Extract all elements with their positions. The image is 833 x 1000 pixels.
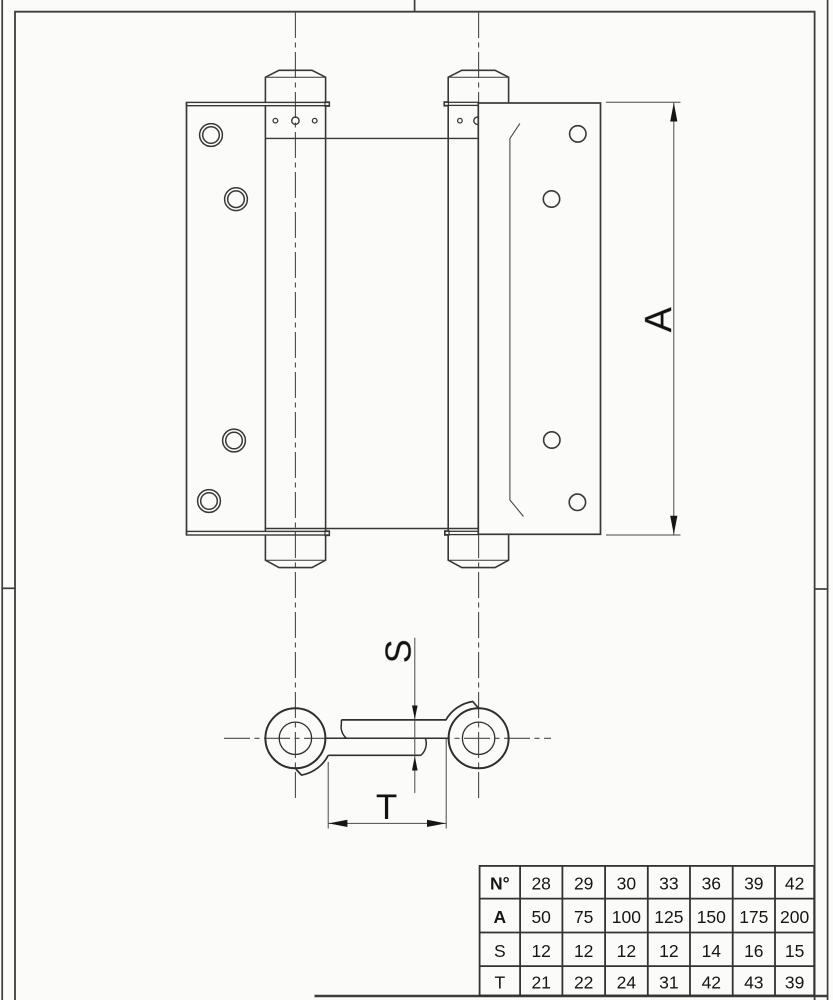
svg-text:150: 150	[697, 907, 726, 927]
svg-text:33: 33	[659, 874, 678, 894]
svg-text:S: S	[378, 639, 419, 663]
svg-text:N°: N°	[490, 874, 510, 894]
svg-text:21: 21	[531, 972, 550, 992]
svg-text:50: 50	[531, 907, 551, 927]
svg-text:A: A	[638, 306, 680, 332]
svg-text:12: 12	[574, 941, 593, 961]
svg-text:T: T	[494, 972, 505, 992]
svg-text:29: 29	[574, 874, 593, 894]
svg-text:24: 24	[617, 972, 637, 992]
svg-text:16: 16	[744, 941, 763, 961]
svg-text:36: 36	[702, 874, 721, 894]
svg-text:S: S	[494, 941, 506, 961]
svg-text:T: T	[376, 788, 397, 827]
svg-text:125: 125	[654, 907, 683, 927]
svg-text:39: 39	[785, 972, 804, 992]
svg-text:42: 42	[785, 874, 804, 894]
svg-text:42: 42	[702, 972, 721, 992]
svg-text:12: 12	[531, 941, 550, 961]
svg-text:15: 15	[785, 941, 804, 961]
svg-text:43: 43	[744, 972, 763, 992]
svg-text:A: A	[493, 907, 506, 927]
svg-text:100: 100	[612, 907, 641, 927]
svg-text:75: 75	[574, 907, 593, 927]
svg-text:39: 39	[744, 874, 763, 894]
svg-text:12: 12	[659, 941, 678, 961]
svg-text:14: 14	[702, 941, 722, 961]
svg-text:200: 200	[780, 907, 809, 927]
svg-text:175: 175	[739, 907, 768, 927]
svg-text:31: 31	[659, 972, 678, 992]
svg-text:28: 28	[531, 874, 550, 894]
svg-text:12: 12	[617, 941, 636, 961]
svg-text:30: 30	[617, 874, 637, 894]
svg-text:22: 22	[574, 972, 593, 992]
